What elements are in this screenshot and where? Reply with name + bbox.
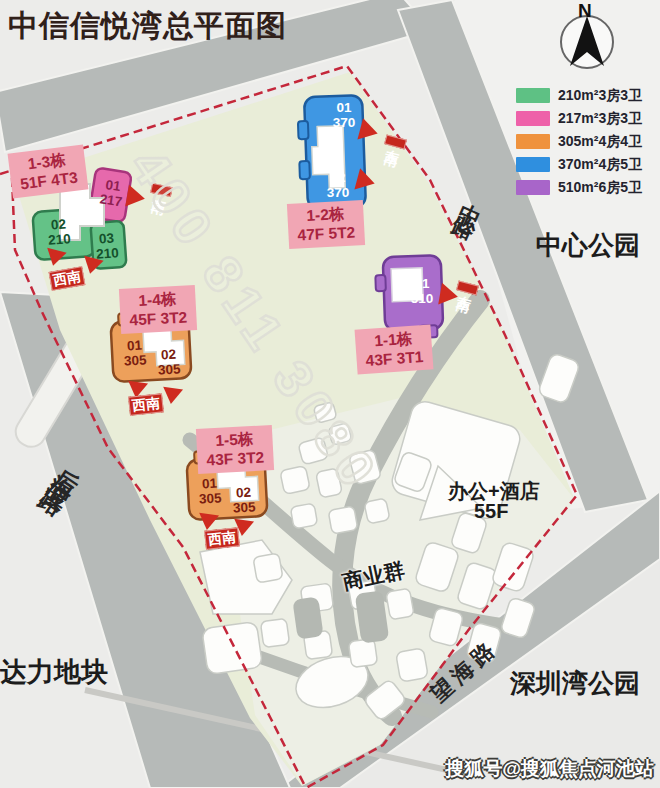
compass bbox=[561, 16, 613, 68]
legend-label: 210m²3房3卫 bbox=[558, 87, 642, 105]
unit-1-3-02: 02 210 bbox=[41, 216, 77, 249]
shenzhen-bay-park-label: 深圳湾公园 bbox=[510, 666, 640, 701]
unit-1-4-01: 01 305 bbox=[117, 337, 153, 369]
legend-swatch-blue bbox=[516, 157, 550, 172]
unit-1-5-02: 02 305 bbox=[226, 484, 262, 516]
unit-1-2-01: 01 370 bbox=[326, 100, 362, 130]
building-spec: 43F 3T1 bbox=[365, 347, 424, 370]
unit-num: 02 bbox=[320, 170, 356, 185]
unit-size: 370 bbox=[326, 115, 362, 130]
office-hotel-floors-label: 55F bbox=[474, 500, 508, 523]
legend-item: 210m²3房3卫 bbox=[516, 84, 642, 107]
center-park-label: 中心公园 bbox=[536, 228, 640, 263]
unit-1-4-02: 02 305 bbox=[151, 346, 187, 378]
building-label-1-3: 1-3栋 51F 4T3 bbox=[8, 145, 89, 199]
commercial-building bbox=[364, 498, 390, 524]
building-spec: 47F 5T2 bbox=[297, 223, 356, 245]
unit-size: 210 bbox=[90, 245, 125, 262]
direction-tag-xinan: 西南 bbox=[204, 527, 240, 550]
unit-size: 510 bbox=[404, 291, 440, 306]
building-spec: 43F 3T2 bbox=[206, 448, 265, 470]
compass-n-label: N bbox=[578, 0, 592, 22]
commercial-building bbox=[253, 553, 283, 583]
building-label-1-2: 1-2栋 47F 5T2 bbox=[287, 200, 365, 249]
commercial-building bbox=[396, 648, 429, 682]
legend-label: 305m²4房4卫 bbox=[558, 133, 642, 151]
commercial-building bbox=[348, 638, 377, 667]
legend-label: 217m²3房3卫 bbox=[558, 110, 642, 128]
dali-plot-label: 达力地块 bbox=[0, 654, 108, 690]
legend-label: 510m²6房5卫 bbox=[558, 179, 642, 197]
unit-num: 01 bbox=[404, 276, 440, 291]
unit-size: 305 bbox=[227, 499, 262, 516]
building-label-1-1: 1-1栋 43F 3T1 bbox=[355, 324, 434, 374]
commercial-building bbox=[280, 466, 310, 495]
legend-label: 370m²4房5卫 bbox=[558, 156, 642, 174]
page-title: 中信信悦湾总平面图 bbox=[8, 6, 287, 47]
building-label-1-5: 1-5栋 43F 3T2 bbox=[196, 425, 274, 474]
commercial-building bbox=[202, 621, 263, 674]
legend-swatch-green bbox=[516, 88, 550, 103]
unit-1-3-03: 03 210 bbox=[89, 230, 125, 263]
unit-1-1-01: 01 510 bbox=[404, 276, 440, 306]
legend-item: 510m²6房5卫 bbox=[516, 176, 642, 199]
unit-size: 305 bbox=[193, 490, 228, 507]
unit-size: 210 bbox=[42, 231, 77, 248]
unit-1-5-01: 01 305 bbox=[192, 475, 228, 507]
commercial-building bbox=[260, 618, 289, 647]
unit-num: 01 bbox=[326, 100, 362, 115]
legend-item: 370m²4房5卫 bbox=[516, 153, 642, 176]
commercial-building bbox=[386, 588, 414, 620]
legend-item: 217m²3房3卫 bbox=[516, 107, 642, 130]
legend-swatch-purple bbox=[516, 180, 550, 195]
legend-swatch-pink bbox=[516, 111, 550, 126]
building-label-1-4: 1-4栋 45F 3T2 bbox=[119, 285, 197, 334]
direction-tag-xinan: 西南 bbox=[128, 393, 164, 416]
sohu-watermark: 搜狐号@搜狐焦点河池站 bbox=[445, 756, 654, 782]
commercial-building bbox=[328, 506, 358, 534]
unit-size: 305 bbox=[152, 361, 187, 378]
site-plan-map: 中信信悦湾总平面图 N 210m²3房3卫 217m²3房3卫 305m²4房4… bbox=[0, 0, 660, 788]
unit-size: 305 bbox=[118, 352, 153, 369]
legend-item: 305m²4房4卫 bbox=[516, 130, 642, 153]
legend-swatch-orange bbox=[516, 134, 550, 149]
building-spec: 45F 3T2 bbox=[129, 308, 188, 330]
unit-size: 370 bbox=[320, 185, 356, 200]
legend: 210m²3房3卫 217m²3房3卫 305m²4房4卫 370m²4房5卫 … bbox=[516, 84, 642, 199]
unit-1-2-02: 02 370 bbox=[320, 170, 356, 200]
commercial-building bbox=[290, 503, 317, 529]
